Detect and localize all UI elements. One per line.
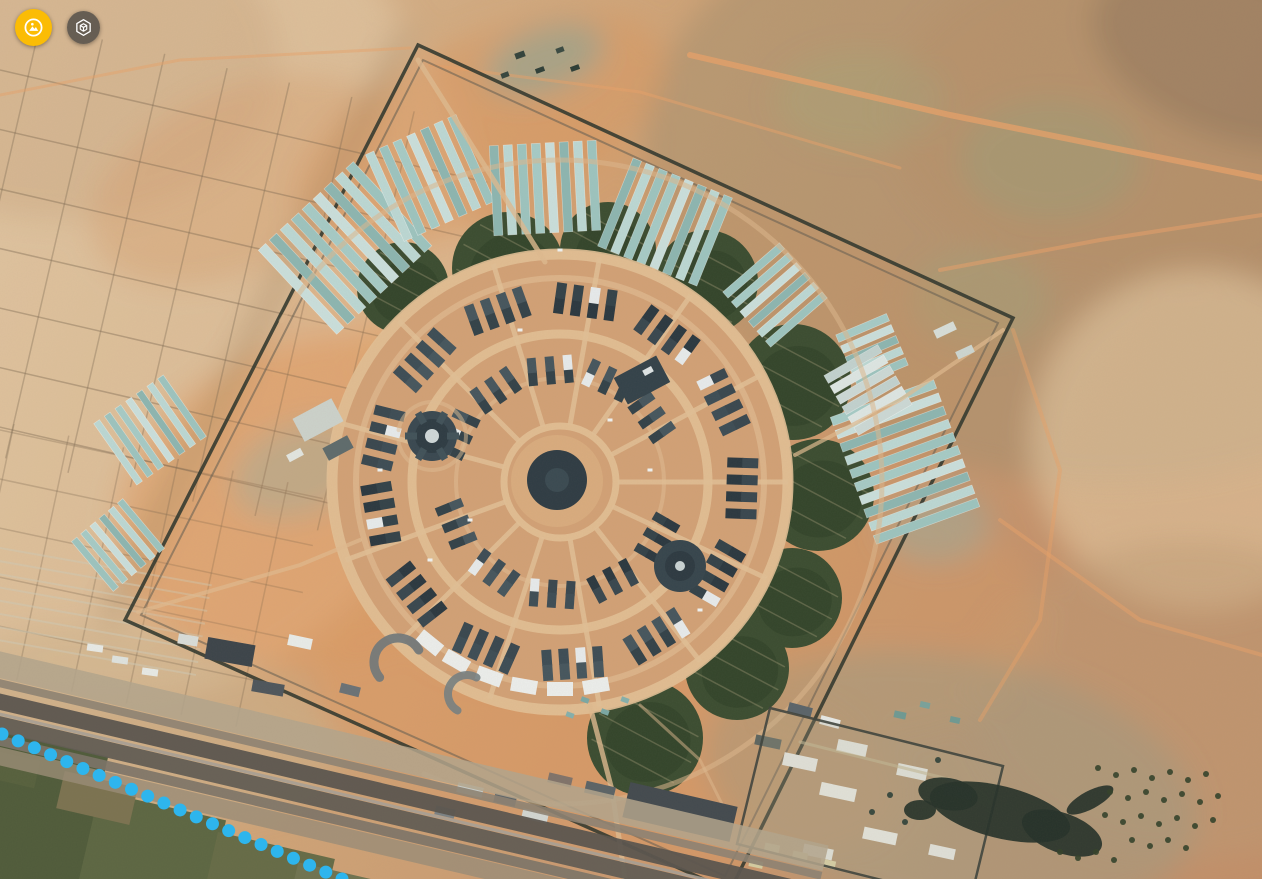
3d-cube-icon — [74, 18, 93, 37]
photo-layer-button[interactable] — [15, 9, 52, 46]
sand-noise — [0, 0, 1262, 879]
satellite-map-view[interactable] — [0, 0, 1262, 879]
photo-icon — [23, 17, 44, 38]
3d-buildings-button[interactable] — [67, 11, 100, 44]
satellite-imagery[interactable] — [0, 0, 1262, 879]
